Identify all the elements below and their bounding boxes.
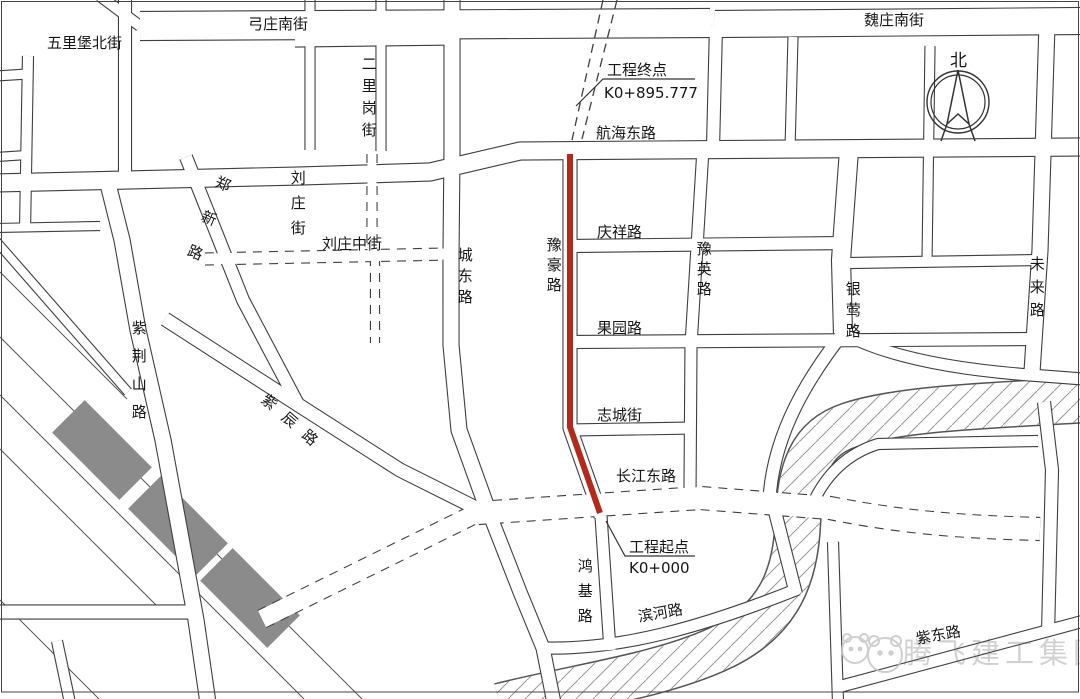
road-v793: [790, 37, 793, 149]
road-v835: [833, 542, 838, 699]
road-rail-side: [0, 241, 128, 392]
road-bl-vert: [57, 641, 70, 699]
road-chengdong-s-ext: [486, 505, 554, 699]
street-label-hanghai: 航海东路: [596, 126, 656, 142]
location-map: 五里堡北街 弓庄南街 魏庄南街 二里岗街 航海东路 郑新路 刘庄街 刘庄中街 城…: [0, 0, 1080, 699]
road-zhicheng-jie: [570, 428, 694, 430]
street-label-guoyuan: 果园路: [597, 321, 642, 337]
street-label-changjiang: 长江东路: [616, 469, 676, 485]
road-h262: [850, 260, 1040, 263]
road-changjiang-sw-ext: [262, 512, 479, 619]
road-guoyuan-lu: [570, 339, 1036, 342]
road-liuzhuang-zhongjie: [205, 254, 448, 259]
street-label-zhicheng: 志城街: [597, 408, 642, 424]
street-label-erligang: 二里岗街: [360, 56, 376, 144]
street-label-yuhao: 豫豪路: [545, 237, 561, 297]
street-label-qingxiang: 庆祥路: [597, 225, 642, 241]
project-end-chainage: K0+895.777: [604, 84, 698, 102]
project-end-label: 工程终点: [607, 59, 667, 80]
road-h228: [0, 226, 100, 228]
road-h156: [0, 155, 27, 157]
road-fills: [0, 0, 1080, 699]
north-label: 北: [950, 46, 967, 71]
road-weilai-lu-s: [1044, 402, 1052, 634]
road-changjiang-donglu: [478, 498, 1040, 529]
street-label-wulibao-beijie: 五里堡北街: [47, 36, 122, 52]
street-label-weizhuang: 魏庄南街: [864, 13, 924, 29]
road-v28: [25, 56, 28, 231]
street-label-weilai: 未来路: [1028, 256, 1044, 325]
road-zichen-lu: [165, 319, 478, 509]
road-v930: [927, 46, 930, 262]
street-label-chengdong: 城东路: [456, 247, 472, 310]
street-label-liuzhuangjie: 刘庄街: [289, 170, 305, 245]
road-h76: [0, 74, 27, 76]
project-start-chainage: K0+000: [629, 559, 690, 577]
road-v718: [713, 26, 716, 148]
street-label-gongzhuang: 弓庄南街: [248, 17, 308, 33]
street-label-liuzhuang-zhongjie: 刘庄中街: [322, 237, 382, 253]
road-h40: [295, 40, 456, 42]
street-label-yuying: 豫英路: [695, 241, 711, 301]
road-casings: [0, 0, 1080, 699]
street-label-hongji: 鸿基路: [576, 558, 592, 633]
north-compass-icon: [927, 70, 989, 141]
project-start-label: 工程起点: [629, 536, 689, 557]
map-canvas: [0, 0, 1080, 699]
street-label-zijingshan: 紫荆山路: [130, 320, 146, 432]
road-hanghai-donglu: [0, 147, 1080, 183]
road-gongzhuang-nanjie: [140, 23, 710, 26]
street-label-yinying: 银莺路: [844, 281, 860, 344]
